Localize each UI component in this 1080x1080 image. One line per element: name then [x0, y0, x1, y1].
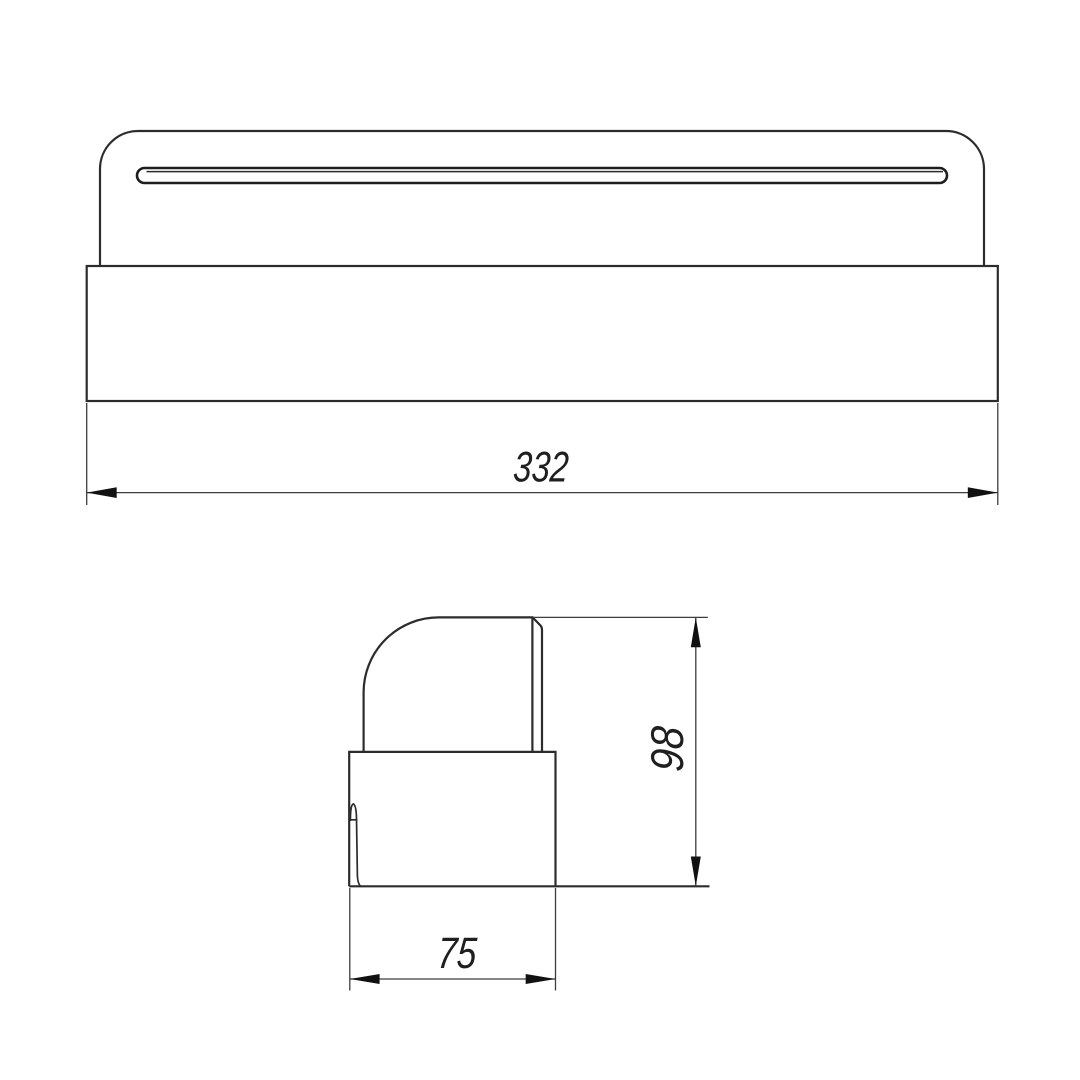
svg-text:75: 75 [436, 929, 479, 978]
svg-text:98: 98 [641, 724, 693, 773]
svg-text:332: 332 [512, 444, 570, 492]
